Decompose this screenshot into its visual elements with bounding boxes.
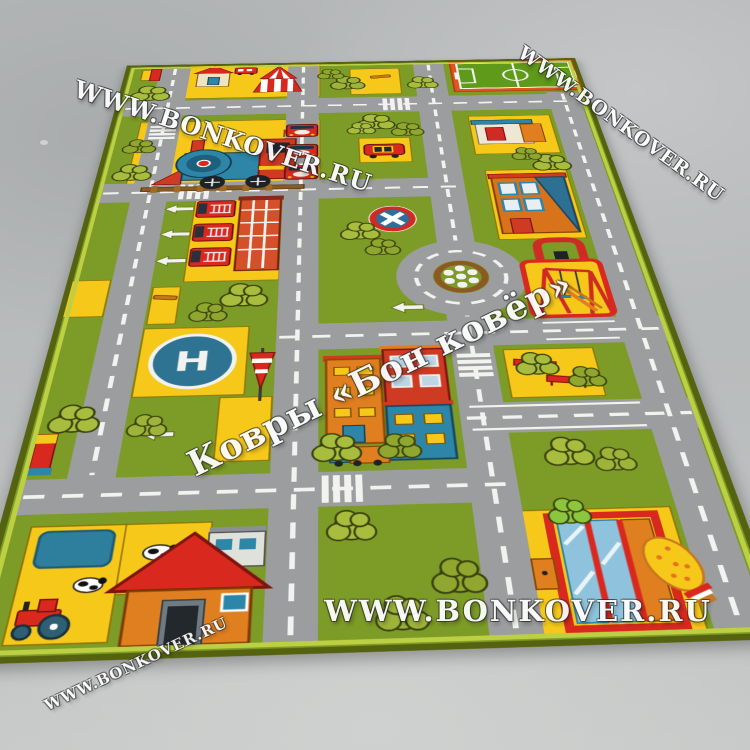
floor-chip xyxy=(40,140,48,145)
helipad-letter: H xyxy=(172,345,212,378)
fire-truck xyxy=(196,201,236,218)
watermark-bottom: WWW.BONKOVER.RU xyxy=(324,594,711,628)
fire-truck xyxy=(189,248,231,267)
pond xyxy=(33,530,116,568)
product-photo: H xyxy=(0,0,750,750)
fire-truck xyxy=(192,223,233,241)
roadside-sign xyxy=(140,69,161,81)
